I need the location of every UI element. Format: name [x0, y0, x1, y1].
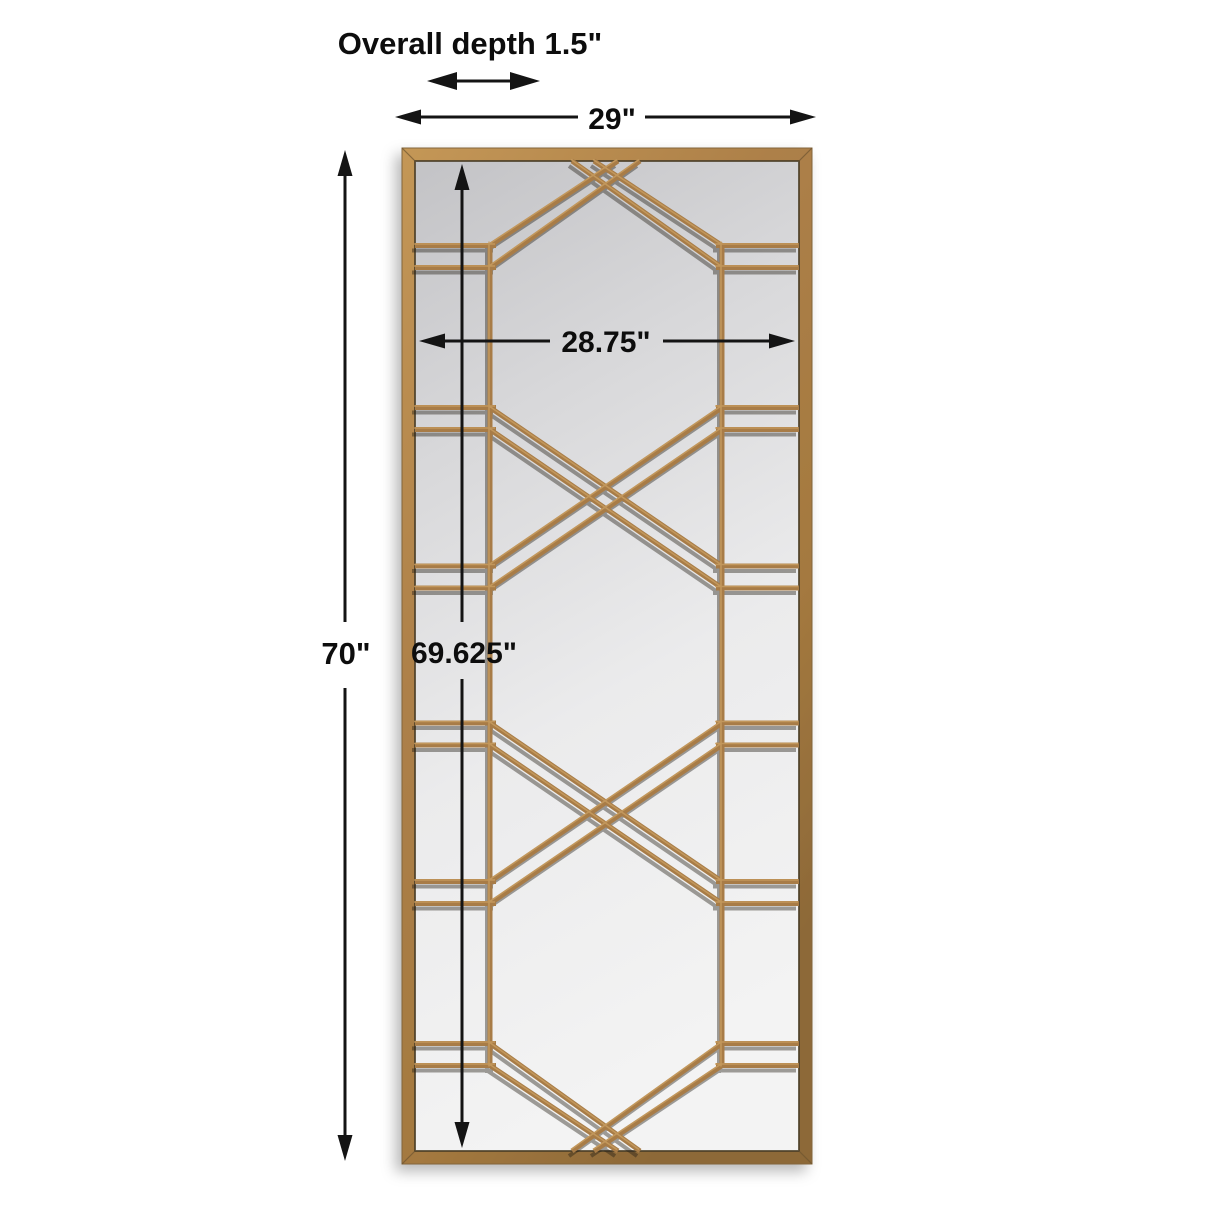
depth-arrow-right-head — [510, 72, 540, 90]
dimension-diagram: Overall depth 1.5" 29" 28.75" — [0, 0, 1214, 1214]
inner-width-label: 28.75" — [561, 326, 650, 359]
inner-height-label: 69.625" — [411, 637, 517, 670]
width-right-head — [790, 110, 816, 125]
depth-label: Overall depth 1.5" — [338, 26, 603, 61]
width-left-head — [395, 110, 421, 125]
dimension-diagram-canvas: Overall depth 1.5" 29" 28.75" — [0, 0, 1214, 1214]
height-bottom-head — [338, 1135, 353, 1161]
height-top-head — [338, 150, 353, 176]
dimension-overall-height: 70" — [321, 150, 370, 1161]
height-label: 70" — [321, 636, 370, 671]
dimension-overall-width: 29" — [395, 103, 816, 136]
width-label: 29" — [588, 103, 636, 136]
depth-arrow-left-head — [427, 72, 457, 90]
dimension-depth: Overall depth 1.5" — [338, 26, 603, 90]
